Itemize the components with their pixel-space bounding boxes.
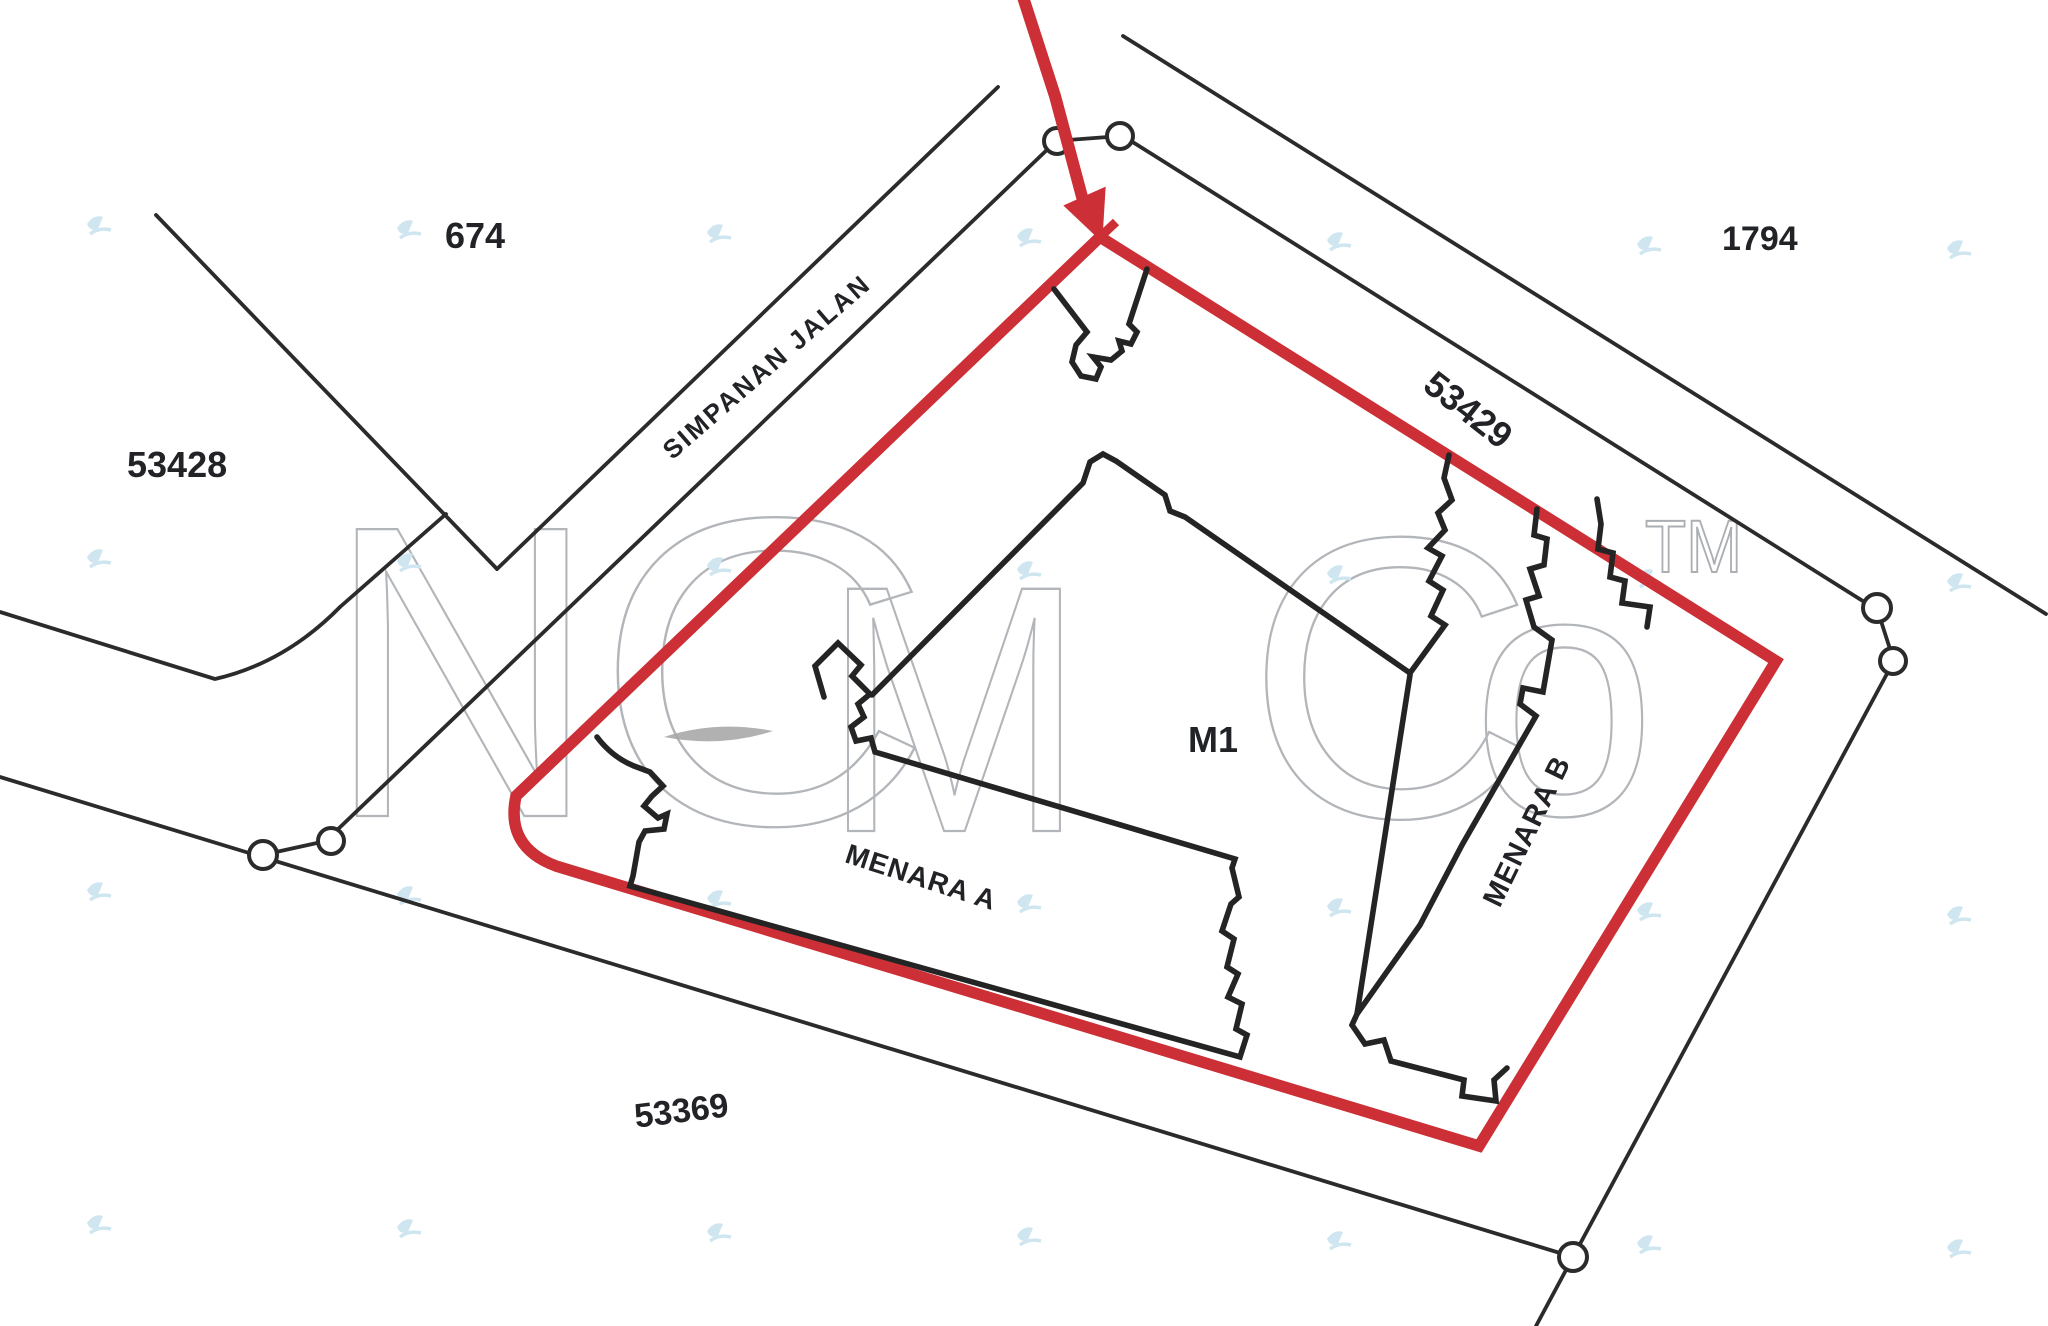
- svg-text:1794: 1794: [1722, 220, 1798, 258]
- svg-text:M1: M1: [1188, 719, 1238, 760]
- svg-text:674: 674: [445, 215, 505, 256]
- svg-text:53369: 53369: [632, 1086, 730, 1135]
- svg-text:53428: 53428: [127, 444, 227, 485]
- svg-text:o: o: [1472, 497, 1656, 890]
